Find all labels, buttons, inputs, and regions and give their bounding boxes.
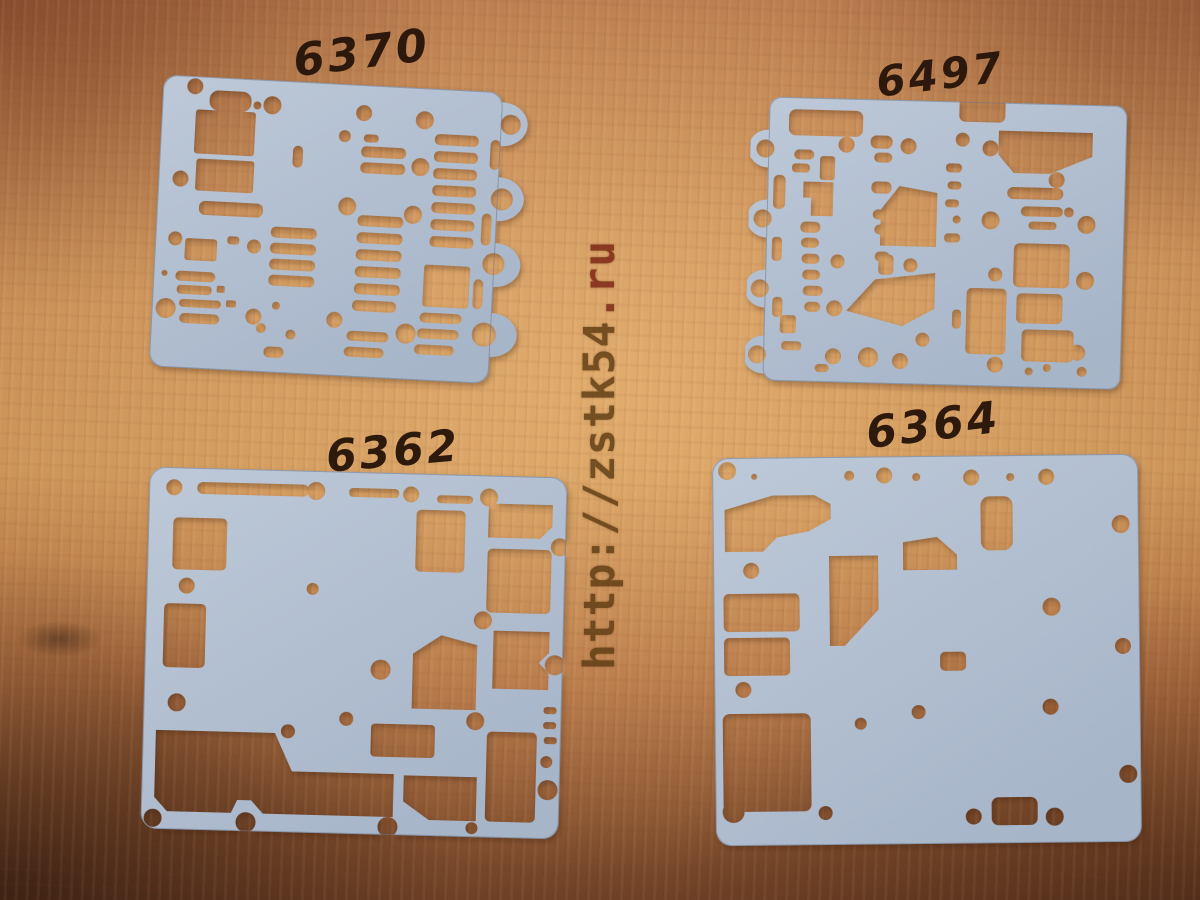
gasket-6364 — [712, 454, 1142, 846]
watermark-url-text: http://zstk54.ru — [575, 240, 625, 670]
gasket-6370 — [149, 75, 532, 386]
watermark-url-tld: .ru — [575, 240, 625, 321]
gasket-6370-body — [149, 75, 532, 386]
watermark-url-main: http://zstk54 — [575, 321, 625, 671]
gasket-6364-body — [712, 454, 1142, 846]
photo-scene: 6370 6497 6362 6364 http://zstk54.ru — [0, 0, 1200, 900]
gasket-6497-body — [744, 96, 1127, 390]
gasket-6362 — [140, 467, 567, 840]
gasket-6497 — [744, 96, 1127, 390]
gasket-6362-body — [140, 467, 567, 840]
